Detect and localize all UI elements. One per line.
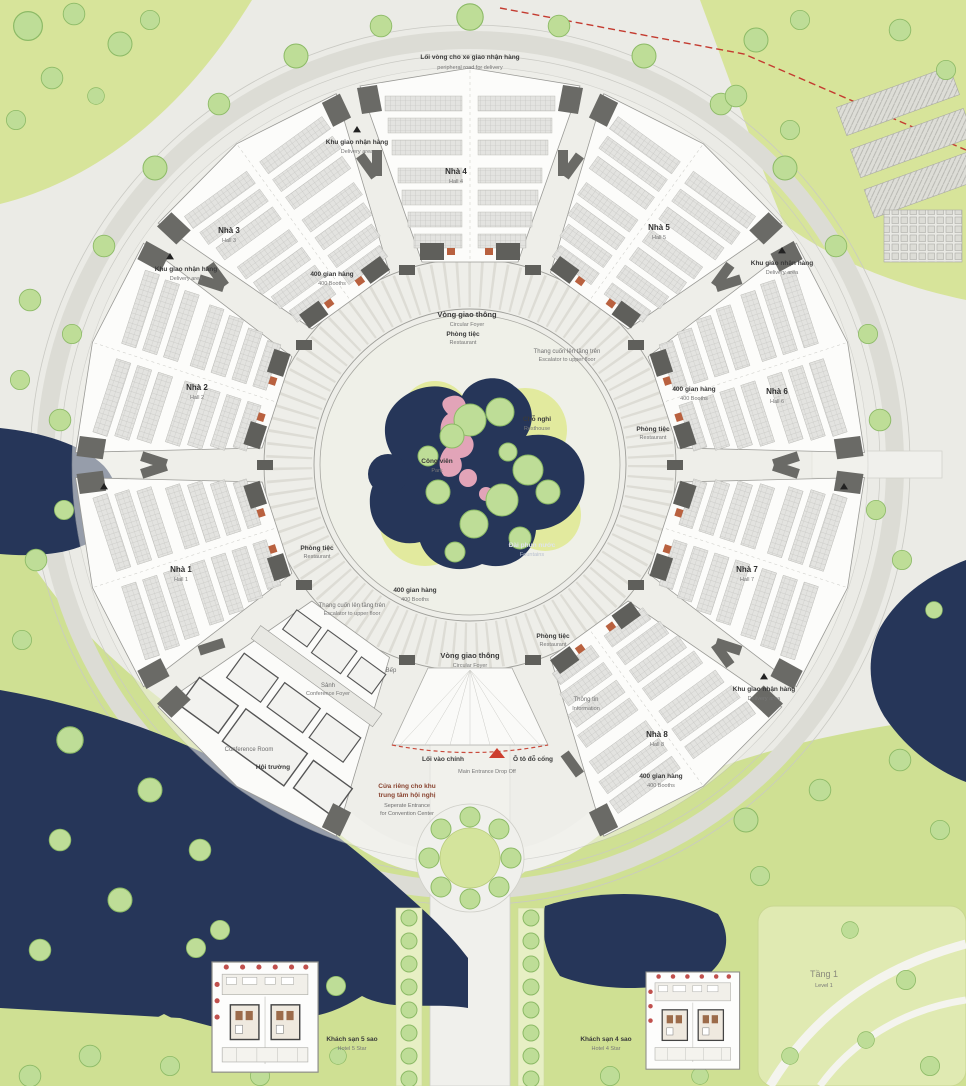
restaurant-label-e-en: Restaurant (640, 435, 667, 441)
restaurant-label-n: Phòng tiệc (446, 331, 480, 338)
separate-entrance-en1: Seperate Entrance (384, 803, 430, 809)
escalator-label-sw: Thang cuốn lên tầng trên (319, 603, 386, 609)
conference-foyer-label-en: Conference Foyer (306, 691, 350, 697)
booths-label-hall1: 400 gian hàng (393, 587, 436, 594)
hall-3-label-en: Hall 3 (222, 238, 236, 244)
master-plan-drawing: Lối vòng cho xe giao nhận hàng periphera… (0, 0, 966, 1086)
hall-7-label: Nhà 7 (736, 565, 758, 574)
kitchen-label: Bếp (386, 668, 397, 674)
delivery-label-right-en: Delivery area (766, 270, 799, 276)
hall-2-label: Nhà 2 (186, 383, 208, 392)
delivery-label-left-en: Delivery area (170, 276, 203, 282)
delivery-label-top: Khu giao nhận hàng (326, 139, 388, 146)
hotel-5-star-label: Khách sạn 5 sao (326, 1036, 377, 1043)
main-entrance-label: Lối vào chính (422, 755, 464, 763)
restaurant-label-n-en: Restaurant (450, 340, 477, 346)
separate-entrance-en2: for Convention Center (380, 811, 434, 817)
resthouse-label-en: Resthouse (524, 426, 550, 432)
restaurant-label-s-en: Restaurant (540, 642, 567, 648)
hall-8-label: Nhà 8 (646, 730, 668, 739)
delivery-label-right: Khu giao nhận hàng (751, 260, 813, 267)
hotel-5-star-building (212, 962, 318, 1072)
conference-foyer-label: Sảnh (321, 683, 335, 689)
booths-label-hall6: 400 gian hàng (672, 386, 715, 393)
escalator-label-ne-en: Escalator to upper floor (539, 357, 596, 363)
floor-label: Tầng 1 (810, 969, 838, 979)
hall-4-label: Nhà 4 (445, 167, 467, 176)
separate-entrance-line2: trung tâm hội nghị (378, 792, 435, 799)
hotel-5-star-label-en: Hotel 5 Star (337, 1046, 366, 1052)
hall-6-label: Nhà 6 (766, 387, 788, 396)
escalator-label-sw-en: Escalator to upper floor (324, 611, 381, 617)
hotel-4-star-label-en: Hotel 4 Star (591, 1046, 620, 1052)
delivery-label-bottom: Khu giao nhận hàng (733, 686, 795, 693)
hall-1-label: Nhà 1 (170, 565, 192, 574)
hall-5-label: Nhà 5 (648, 223, 670, 232)
auditorium-label: Hội trường (256, 764, 290, 771)
hotel-4-star-label: Khách sạn 4 sao (580, 1036, 631, 1043)
roundabout (416, 804, 524, 912)
circular-foyer-label-top-en: Circular Foyer (450, 322, 485, 328)
delivery-label-top-en: Delivery area (341, 149, 374, 155)
delivery-label-left: Khu giao nhận hàng (155, 266, 217, 273)
restaurant-label-s: Phòng tiệc (536, 633, 570, 640)
booths-label-hall8: 400 gian hàng (639, 773, 682, 780)
hall-4-label-en: Hall 4 (449, 179, 463, 185)
information-label: Thông tin (573, 697, 598, 703)
dropoff-label: Ô tô đỗ cổng (513, 754, 553, 763)
ring-road-label-en: peripheral road for delivery (437, 65, 503, 71)
hall-3-label: Nhà 3 (218, 226, 240, 235)
booths-label-hall3: 400 gian hàng (310, 271, 353, 278)
booths-label-hall3-en: 400 Booths (318, 281, 346, 287)
ring-road-label: Lối vòng cho xe giao nhận hàng (420, 53, 519, 61)
resthouse-label: Chỗ nghỉ (523, 414, 551, 423)
booths-label-hall6-en: 400 Booths (680, 396, 708, 402)
hall-2-label-en: Hall 2 (190, 395, 204, 401)
escalator-label-ne: Thang cuốn lên tầng trên (534, 349, 601, 355)
circular-foyer-label-top: Vòng giao thông (437, 310, 497, 319)
circular-foyer-label-bottom: Vòng giao thông (440, 651, 500, 660)
park-label: Công viên (421, 458, 452, 465)
circular-foyer-label-bottom-en: Circular Foyer (453, 663, 488, 669)
booths-label-hall1-en: 400 Booths (401, 597, 429, 603)
restaurant-label-e: Phòng tiệc (636, 426, 670, 433)
hall-5-label-en: Hall 5 (652, 235, 666, 241)
main-entrance-label-en: Main Entrance Drop Off (458, 769, 516, 775)
fountain-label-en: Fountains (520, 552, 544, 558)
restaurant-label-w-en: Restaurant (304, 554, 331, 560)
restaurant-label-w: Phòng tiệc (300, 545, 334, 552)
conference-room-label: Conference Room (225, 747, 274, 753)
separate-entrance-line1: Cửa riêng cho khu (378, 783, 435, 790)
hall-8-label-en: Hall 8 (650, 742, 664, 748)
fountain-label: Đài phun nước (509, 542, 556, 549)
information-label-en: Information (572, 706, 600, 712)
hall-7-label-en: Hall 7 (740, 577, 754, 583)
booths-label-hall8-en: 400 Booths (647, 783, 675, 789)
floor-label-en: Level 1 (815, 983, 833, 989)
hall-1-label-en: Hall 1 (174, 577, 188, 583)
delivery-label-bottom-en: Delivery area (748, 696, 781, 702)
hall-6-label-en: Hall 6 (770, 399, 784, 405)
park-label-en: Park (431, 468, 443, 474)
hotel-4-star-building (646, 972, 740, 1069)
site-plan: Lối vòng cho xe giao nhận hàng periphera… (0, 0, 966, 1086)
